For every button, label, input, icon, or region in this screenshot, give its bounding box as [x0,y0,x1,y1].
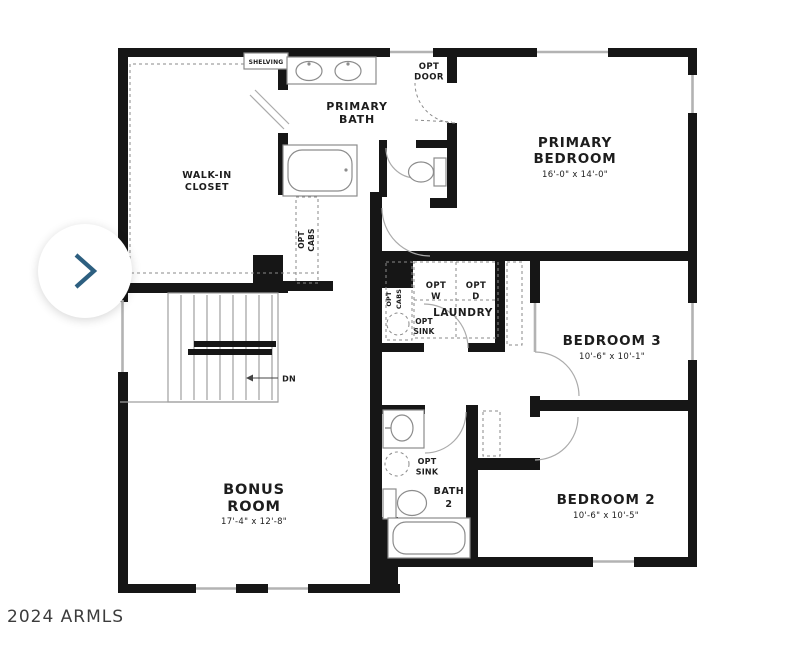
opt-door-label: OPT [419,62,439,72]
photo-viewer: SHELVING PRIMARY BATH OPT DOOR WALK-IN C… [0,0,800,653]
primary-bedroom-label-2: BEDROOM [533,151,616,167]
laundry-opt-cabs-label: OPT [385,291,393,307]
bath2-opt-sink-label-2: SINK [416,468,439,477]
armls-watermark: 2024 ARMLS [7,607,124,627]
stairs [120,293,278,402]
bath2-opt-sink-label: OPT [418,457,437,466]
shelving-label: SHELVING [249,59,284,66]
opt-dryer-label: OPT [466,281,486,291]
toilet-2-icon [383,489,427,519]
primary-bath-label-2: BATH [339,113,375,126]
opt-cabinet-chase-2 [483,411,500,456]
next-photo-button[interactable] [38,224,132,318]
laundry-opt-sink-label-2: SINK [413,327,435,336]
bath-2-label-2: 2 [445,499,452,510]
double-sink-icon [287,57,376,84]
bonus-room-label: BONUS [223,482,285,498]
primary-bedroom-label: PRIMARY [538,135,612,151]
down-arrow-icon [246,375,278,382]
sink-icon [383,410,424,448]
opt-cabinet-chase [507,262,522,345]
laundry-opt-sink-label: OPT [415,317,433,326]
bath-2-label: BATH [434,486,465,497]
opt-washer-label: OPT [426,281,446,291]
bedroom-3-label: BEDROOM 3 [563,333,662,349]
walk-in-closet-label-2: CLOSET [185,182,229,193]
floorplan-image: SHELVING PRIMARY BATH OPT DOOR WALK-IN C… [0,0,800,653]
stairs-dn-label: DN [282,375,296,384]
bonus-room-label-2: ROOM [227,499,280,515]
bedroom-3-dims: 10'-6" x 10'-1" [579,352,645,362]
bathtub-icon [283,145,357,196]
walk-in-closet-label: WALK-IN [182,170,232,181]
closet-opt-cabs-label-2: CABS [307,228,316,251]
chevron-right-icon [72,251,98,291]
toilet-icon [409,158,447,186]
bedroom-2-dims: 10'-6" x 10'-5" [573,511,639,521]
bedroom-2-label: BEDROOM 2 [557,492,656,508]
bonus-room-dims: 17'-4" x 12'-8" [221,517,287,527]
door-swings [250,83,579,460]
closet-opt-cabs-label: OPT [297,231,306,249]
laundry-opt-cabs-label-2: CABS [395,289,403,309]
opt-door-label-2: DOOR [414,73,444,83]
opt-sink-icon [385,452,409,476]
primary-bath-label: PRIMARY [326,100,388,113]
primary-bedroom-dims: 16'-0" x 14'-0" [542,170,608,180]
laundry-label: LAUNDRY [433,307,493,319]
opt-washer-label-2: W [431,292,441,302]
opt-dryer-label-2: D [472,292,479,302]
bathtub-2-icon [388,518,470,558]
